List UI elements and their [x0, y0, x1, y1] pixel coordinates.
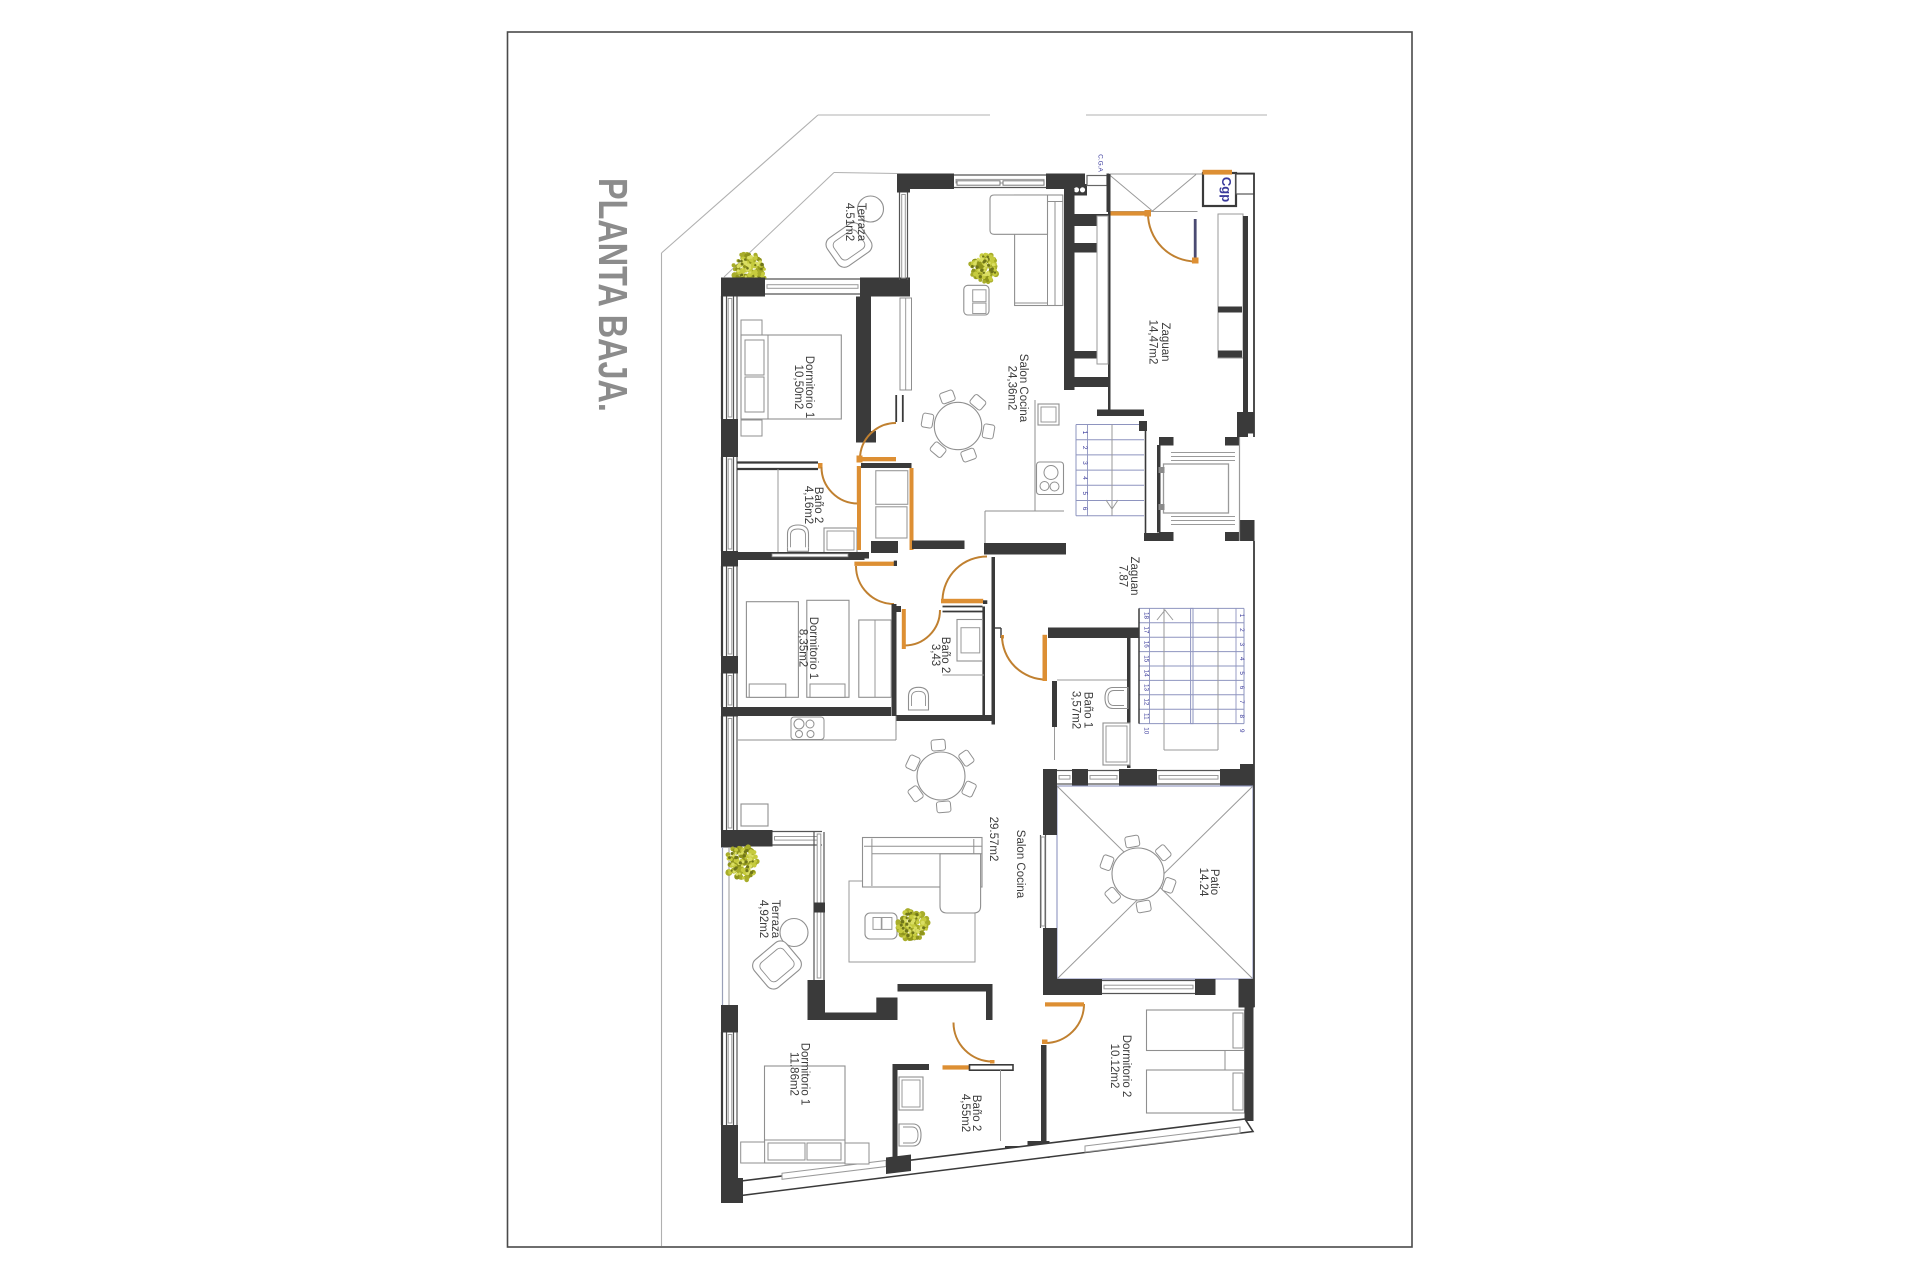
svg-text:4: 4 — [1081, 476, 1088, 480]
svg-text:Terraza: Terraza — [855, 203, 867, 242]
svg-text:14: 14 — [1143, 670, 1150, 678]
svg-text:6: 6 — [1081, 507, 1088, 511]
svg-text:17: 17 — [1143, 626, 1150, 634]
svg-text:16: 16 — [1143, 641, 1150, 649]
svg-text:12: 12 — [1143, 698, 1150, 706]
svg-text:14.24: 14.24 — [1197, 868, 1209, 897]
svg-text:11: 11 — [1143, 713, 1150, 720]
svg-text:8: 8 — [1238, 715, 1245, 719]
svg-text:4,16m2: 4,16m2 — [802, 486, 814, 524]
svg-text:7: 7 — [1238, 700, 1245, 704]
svg-text:Salon Cocina: Salon Cocina — [1017, 354, 1029, 423]
svg-text:Dormitorio 2: Dormitorio 2 — [1120, 1035, 1132, 1098]
svg-text:15: 15 — [1143, 655, 1150, 663]
svg-text:5: 5 — [1238, 671, 1245, 675]
svg-text:PLANTA BAJA.: PLANTA BAJA. — [590, 178, 635, 412]
svg-text:6: 6 — [1238, 686, 1245, 690]
svg-text:Zaguan: Zaguan — [1128, 556, 1140, 595]
svg-text:1: 1 — [1238, 614, 1245, 618]
svg-text:C.G.A: C.G.A — [1097, 154, 1104, 172]
svg-text:1: 1 — [1081, 431, 1088, 435]
svg-text:10,50m2: 10,50m2 — [792, 365, 804, 410]
svg-text:24,36m2: 24,36m2 — [1006, 366, 1018, 411]
svg-text:4,92m2: 4,92m2 — [757, 900, 769, 938]
svg-text:10.12m2: 10.12m2 — [1108, 1044, 1120, 1089]
svg-text:3,43: 3,43 — [929, 644, 941, 666]
svg-text:10: 10 — [1143, 727, 1150, 735]
svg-text:4,55m2: 4,55m2 — [959, 1094, 971, 1132]
svg-text:3: 3 — [1081, 461, 1088, 465]
svg-text:14,47m2: 14,47m2 — [1147, 320, 1159, 365]
svg-text:29.57m2: 29.57m2 — [987, 817, 999, 862]
svg-text:18: 18 — [1143, 612, 1150, 620]
svg-text:4.51m2: 4.51m2 — [843, 203, 855, 241]
svg-text:3: 3 — [1238, 643, 1245, 647]
svg-text:Salon Cocina: Salon Cocina — [1014, 830, 1026, 899]
svg-text:9: 9 — [1238, 729, 1245, 733]
svg-text:Baño 1: Baño 1 — [1082, 692, 1094, 728]
svg-text:13: 13 — [1143, 684, 1150, 692]
svg-text:5: 5 — [1081, 491, 1088, 495]
svg-text:8,35m2: 8,35m2 — [797, 629, 809, 667]
svg-text:Zaguan: Zaguan — [1159, 322, 1171, 361]
svg-text:Terraza: Terraza — [769, 900, 781, 939]
svg-text:2: 2 — [1081, 446, 1088, 450]
svg-text:7.87: 7.87 — [1117, 565, 1129, 587]
svg-text:4: 4 — [1238, 657, 1245, 661]
svg-text:2: 2 — [1238, 628, 1245, 632]
svg-text:11.86m2: 11.86m2 — [788, 1052, 800, 1096]
svg-text:Cgp: Cgp — [1219, 177, 1234, 202]
svg-text:3,57m2: 3,57m2 — [1070, 691, 1082, 729]
